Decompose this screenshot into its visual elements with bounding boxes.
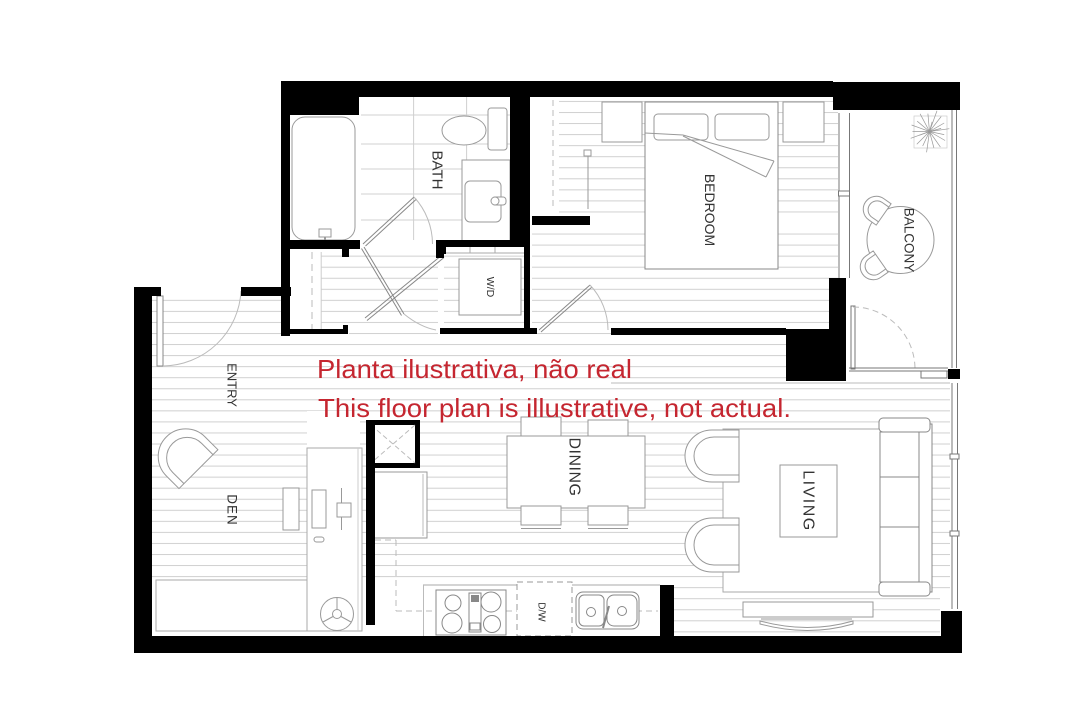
svg-text:Planta ilustrativa, não real: Planta ilustrativa, não real — [317, 354, 632, 384]
svg-text:BATH: BATH — [429, 151, 446, 190]
svg-text:This floor plan is illustrativ: This floor plan is illustrative, not act… — [318, 393, 791, 423]
svg-text:BALCONY: BALCONY — [902, 208, 917, 273]
svg-text:DINING: DINING — [566, 438, 583, 497]
svg-text:BEDROOM: BEDROOM — [702, 174, 718, 246]
svg-text:LIVING: LIVING — [800, 470, 817, 531]
svg-text:DEN: DEN — [225, 494, 240, 526]
svg-text:D/W: D/W — [536, 602, 547, 622]
svg-text:W/D: W/D — [484, 277, 496, 298]
svg-text:ENTRY: ENTRY — [225, 363, 240, 407]
